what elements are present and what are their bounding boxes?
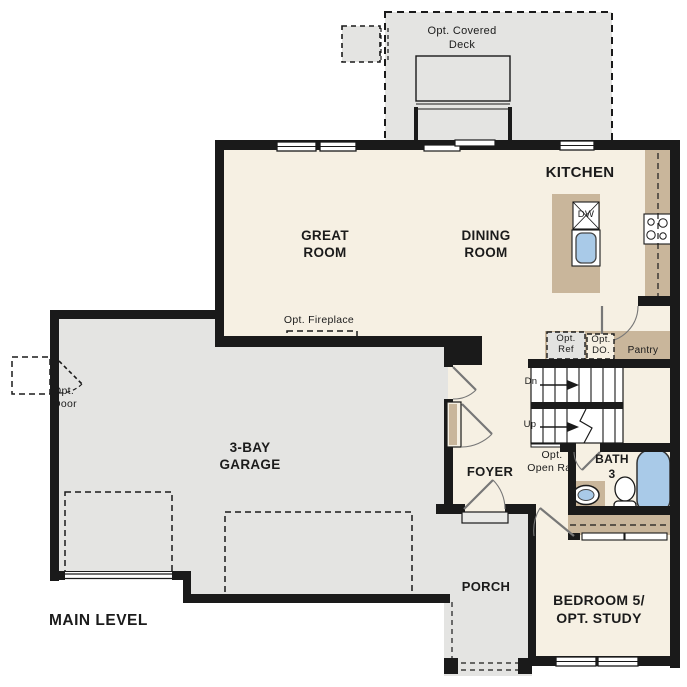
wall-stairs-top [528, 359, 680, 368]
opt-open-rail-label: Opt.Open Rail [527, 449, 576, 474]
pantry-label: Pantry [628, 345, 659, 358]
wall-right [670, 140, 680, 668]
opt-fireplace-label: Opt. Fireplace [284, 314, 354, 327]
garage-label: 3-BAYGARAGE [219, 440, 280, 474]
porch-pillar [518, 658, 532, 674]
wall-garage-left [50, 310, 59, 581]
wall-bath-top-right [600, 443, 680, 452]
opt-do-label: Opt.DO. [591, 334, 610, 357]
porch-pillar [444, 658, 458, 674]
porch-label: PORCH [462, 579, 510, 595]
wall-front-left [436, 504, 465, 514]
stair-divider [531, 402, 623, 409]
dining-room-label: DININGROOM [461, 228, 510, 262]
stairs [531, 367, 623, 447]
dishwasher-label: DW [578, 209, 594, 221]
sliding-door-leaf [455, 140, 495, 146]
foyer-closet [447, 402, 461, 447]
wall-closet-stub [568, 533, 580, 540]
stairs-down-label: Dn [525, 376, 538, 388]
kitchen-sink-icon [576, 233, 596, 263]
great-room-label: GREATROOM [301, 228, 349, 262]
deck-label: Opt. CoveredDeck [427, 25, 496, 53]
bathtub-icon [637, 450, 670, 513]
closet-slider [625, 533, 667, 540]
bedroom5-label: BEDROOM 5/OPT. STUDY [553, 592, 645, 627]
opt-door-label: Opt.Door [53, 385, 77, 411]
stairs-up-label: Up [524, 419, 537, 431]
plan-title: MAIN LEVEL [49, 611, 148, 630]
wall-bedroom-left [528, 507, 536, 658]
closet-slider [582, 533, 624, 540]
wall-garage-top [50, 310, 223, 319]
bath-sink-bowl [578, 490, 594, 501]
opt-door-stoop [12, 357, 50, 394]
foyer-label: FOYER [467, 464, 513, 480]
floor-plan-drawing [0, 0, 687, 687]
wall-pantry-top [638, 296, 671, 306]
deck-landing [342, 26, 380, 62]
closet-shelf [449, 404, 457, 445]
wall-bath-bottom [568, 506, 671, 515]
bath3-label: BATH3 [595, 452, 629, 482]
porch-step [462, 512, 508, 523]
opt-ref-label: Opt.Ref [556, 333, 575, 356]
kitchen-label: KITCHEN [546, 164, 615, 183]
floor-plan: Opt. CoveredDeck KITCHEN GREATROOM DININ… [0, 0, 687, 687]
wall-foyer-left-upper [444, 336, 453, 367]
